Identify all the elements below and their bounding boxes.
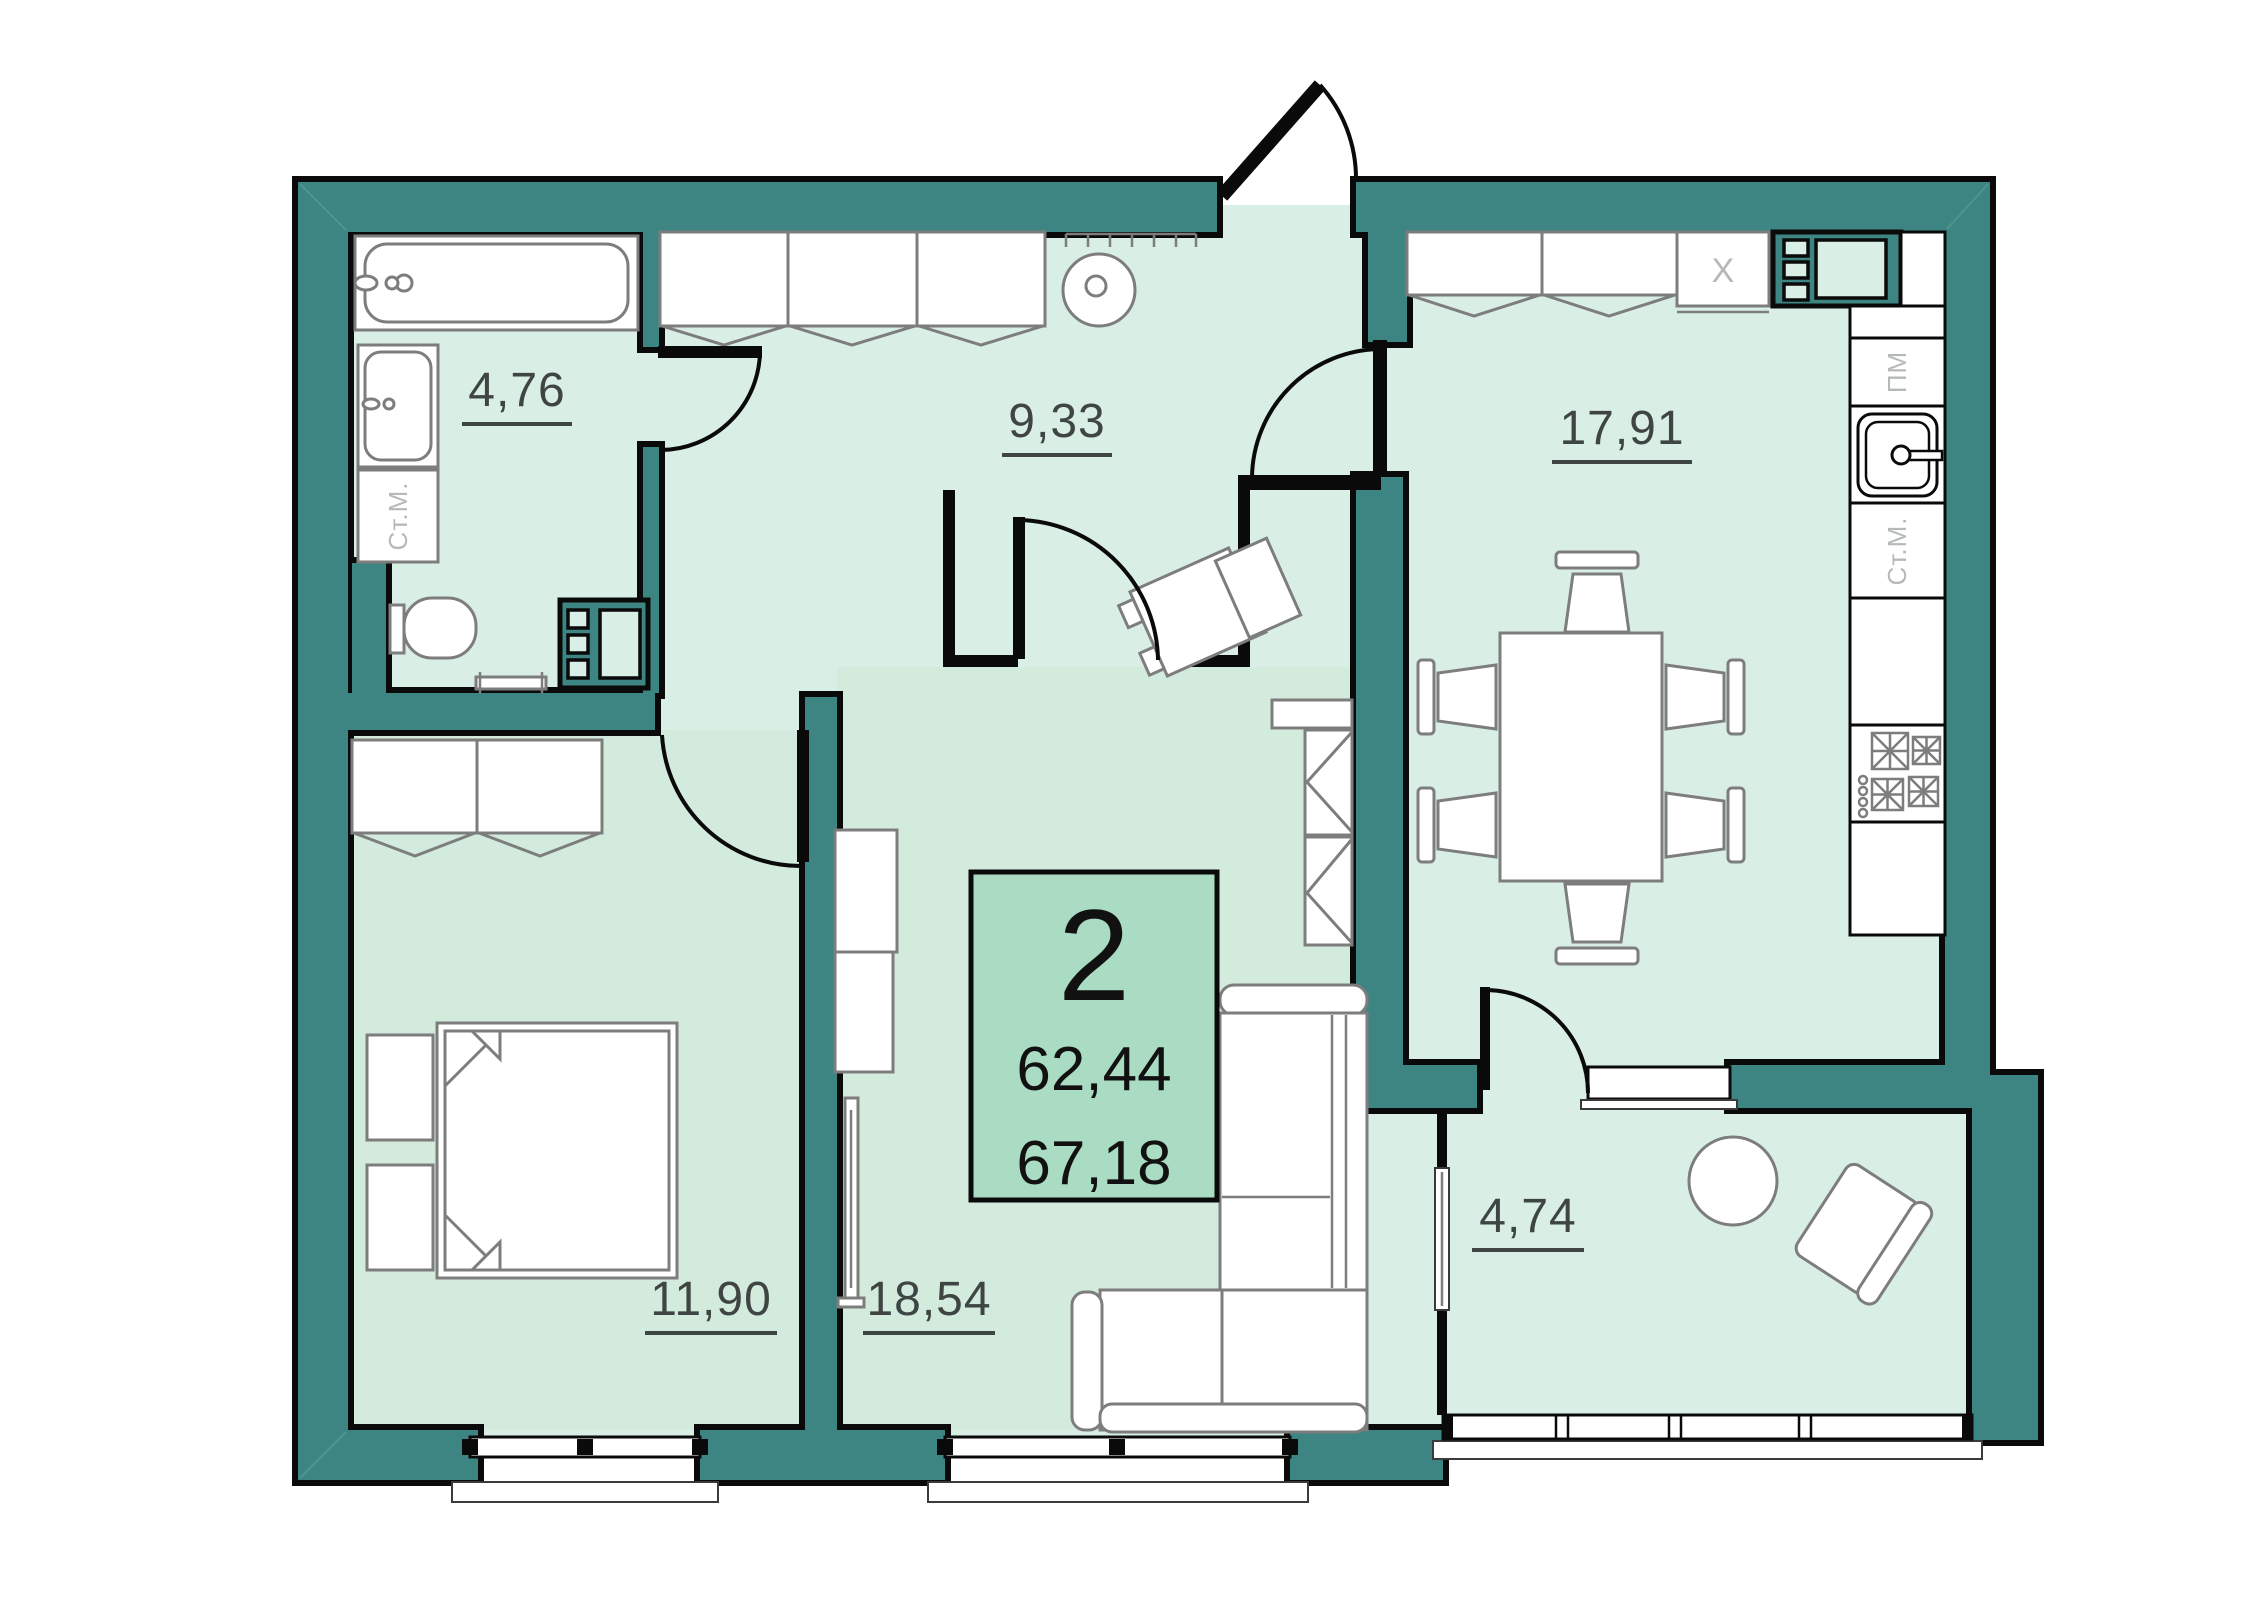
kitchen-vent-shaft-icon xyxy=(1773,232,1901,306)
bathtub-icon xyxy=(355,236,638,330)
wall-living-kitchen xyxy=(1356,477,1403,1065)
fridge-label: X xyxy=(1712,252,1735,290)
bathroom-vent-shaft-icon xyxy=(560,600,648,688)
window-bedroom xyxy=(452,1437,718,1502)
washing-machine-icon: Ст.М. xyxy=(358,470,438,562)
dishwasher-icon: ПМ xyxy=(1850,338,1945,406)
wall-hall-kitchen-stub xyxy=(1368,232,1407,342)
wall-bottom-b xyxy=(700,1430,945,1480)
nightstand-icon xyxy=(367,1035,433,1140)
wall-top-right xyxy=(1356,182,1990,232)
wall-balcony-right xyxy=(1972,1075,2038,1440)
nightstand-icon xyxy=(367,1165,433,1270)
window-kitchen-balcony xyxy=(1581,1067,1737,1109)
bed-icon xyxy=(437,1023,677,1278)
tv-stand-icon xyxy=(835,830,897,1072)
info-box: 2 62,44 67,18 xyxy=(971,872,1217,1200)
info-box-unit-number: 2 xyxy=(1058,882,1130,1028)
fridge-icon: X xyxy=(1677,232,1769,312)
label-hallway-area: 9,33 xyxy=(1008,395,1105,448)
label-living-area: 18,54 xyxy=(866,1273,991,1326)
stool-icon xyxy=(1063,254,1135,326)
washing-machine-kitchen-label: Ст.М. xyxy=(1882,517,1912,586)
wall-bottom-a xyxy=(298,1430,478,1480)
chair-icon xyxy=(1666,788,1744,862)
kitchen-counter-1 xyxy=(1850,306,1945,338)
info-box-area-total: 67,18 xyxy=(1016,1129,1171,1198)
chair-icon xyxy=(1666,660,1744,734)
label-balcony-area: 4,74 xyxy=(1479,1190,1576,1243)
wall-bath-hall-upper xyxy=(643,232,659,347)
kitchen-counter-3 xyxy=(1850,822,1945,935)
wall-bedroom-top xyxy=(298,693,655,730)
toilet-icon xyxy=(390,598,476,658)
bathroom-sink-icon xyxy=(358,345,438,467)
washing-machine-label: Ст.М. xyxy=(383,482,413,551)
dishwasher-label: ПМ xyxy=(1882,351,1912,393)
kitchen-corner-counter xyxy=(1901,232,1945,306)
wall-bedroom-living xyxy=(805,697,837,1430)
wall-top-left xyxy=(298,182,1217,232)
chair-icon xyxy=(1418,788,1496,862)
label-kitchen-area: 17,91 xyxy=(1559,402,1684,455)
wall-balcony-top xyxy=(1730,1065,1972,1108)
window-living xyxy=(928,1437,1308,1502)
label-bedroom-area: 11,90 xyxy=(650,1273,772,1326)
label-bathroom-area: 4,76 xyxy=(468,364,565,417)
wall-left xyxy=(298,182,348,1480)
info-box-area-living: 62,44 xyxy=(1016,1035,1171,1104)
chair-icon xyxy=(1418,660,1496,734)
floor-plan-svg: Ст.М. xyxy=(0,0,2264,1600)
kitchen-sink-icon xyxy=(1850,406,1945,503)
wall-bottom-c xyxy=(1290,1430,1443,1480)
wall-balcony-corner xyxy=(1356,1065,1477,1108)
stove-icon xyxy=(1850,725,1945,822)
wall-kitchen-right xyxy=(1945,182,1990,1108)
wall-bathroom-stub xyxy=(352,563,386,693)
washing-machine-kitchen-icon: Ст.М. xyxy=(1850,503,1945,598)
dining-table-icon xyxy=(1500,633,1662,881)
balcony-table-icon xyxy=(1689,1137,1777,1225)
floor-plan-page: Ст.М. xyxy=(0,0,2264,1600)
door-entrance xyxy=(1222,85,1356,196)
kitchen-counter-2 xyxy=(1850,598,1945,725)
